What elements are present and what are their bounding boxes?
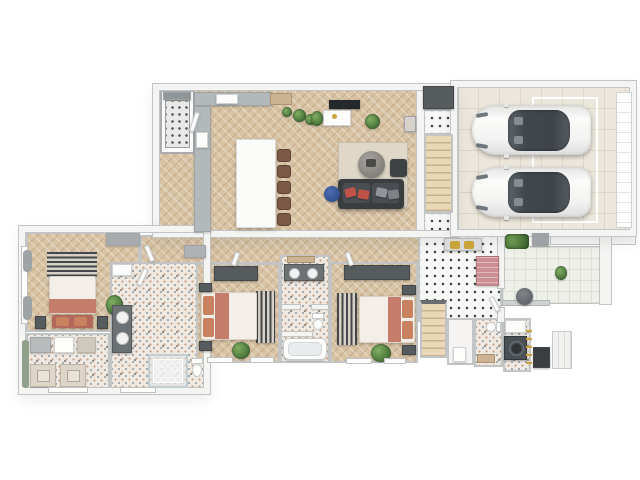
bench-cushion-gold [450,241,460,249]
plant-stand [404,116,416,132]
stair-closet [423,86,454,109]
window [384,358,406,364]
runner-rug [476,256,499,286]
bath-partition-wall [282,332,312,336]
sink [116,311,129,324]
blue-pouf [324,186,340,202]
dryer [60,364,86,387]
dryer-door [67,370,80,382]
dining-chair [277,213,291,226]
stair-landing-bottom [423,212,454,236]
toilet-bowl [313,319,323,330]
bath-shelf [287,256,315,263]
bedroom3-bed [359,296,415,343]
stairs-up [424,134,453,213]
outdoor-unit [533,347,550,368]
nightstand [97,316,108,329]
car-mirror [504,216,509,220]
bath-partition-wall [312,305,328,309]
bench-cushion [74,317,87,326]
coffee-table-decor [366,159,376,167]
wood-bench [477,354,495,363]
bed-pillow [203,318,214,337]
curtain [23,250,32,272]
plant [311,111,323,126]
kitchen-sink [196,132,208,148]
pantry-shelving [165,100,190,148]
plant [232,342,250,359]
car-seat [514,136,523,144]
entry-bench [444,238,482,251]
toilet [190,358,204,377]
car-seat [514,117,523,125]
front-load-washer [504,336,527,360]
master-headboard-rug [47,252,97,277]
bed-pillow [402,300,413,318]
closet-drawers [30,337,51,353]
sofa [338,179,404,209]
car-mirror [504,103,509,107]
dining-island [236,139,276,228]
closet-drawers [54,337,74,353]
sink [116,332,129,345]
bedroom2-bed [201,292,257,340]
window [250,357,274,363]
nightstand [402,285,416,295]
floor-plan [0,0,640,480]
patio-wall-right [600,231,611,304]
cooktop [216,94,238,104]
closet-greenery [22,340,29,388]
stairs-down [420,300,447,358]
washer-door [37,370,50,382]
kitchen-counter-left [194,106,211,232]
tv [329,100,360,109]
garage-door [616,92,632,228]
car-mirror [504,154,509,158]
washer [30,364,56,387]
sofa-pillow-red [357,189,369,200]
bed-throw [388,297,401,342]
plant [555,266,567,280]
toilet-bowl [192,364,202,377]
hedge [505,234,529,249]
washer-door [509,341,524,356]
master-bench [52,315,93,328]
car-mirror [504,165,509,169]
toilet-tank [496,322,501,332]
car-glass-roof [508,110,570,151]
stair-landing-top [423,109,454,135]
toilet-bowl [486,322,496,332]
bedside-rug [337,293,357,345]
bathtub-basin [288,342,322,356]
sofa-pillow-gray [387,189,399,199]
nightstand [402,345,416,355]
bench-cushion [56,317,69,326]
toilet [311,313,325,330]
bath-wall-cabinet [112,264,132,276]
car-glass-roof [508,172,570,213]
bed-throw [215,293,229,339]
closet-drawers [77,337,96,353]
car [472,167,591,217]
window [120,387,156,393]
toilet [486,321,501,333]
closet-box [453,347,466,362]
side-table [390,159,407,177]
bed-pillow [203,296,214,315]
laundry-shelf [505,320,526,333]
nightstand [35,316,46,329]
pantry-cabinet [163,92,191,100]
master-dresser [106,233,140,246]
planter [532,233,549,246]
plant [282,107,292,117]
ladder-rack [526,330,532,364]
bed-pillow [402,321,413,339]
kitchen-counter-wood [270,93,292,105]
sink [307,268,318,279]
console-decor [332,114,337,119]
master-bed-throw [49,299,96,313]
bathtub [283,338,327,360]
bistro-table [516,288,533,305]
patio-fence [551,231,635,244]
wall-living-stairs [417,89,424,235]
bench-cushion-gold [464,241,474,249]
car-seat [514,179,523,187]
porch-steps [552,331,572,369]
dining-chair [277,165,291,178]
window [207,357,233,363]
wardrobe [344,265,410,280]
shower-tray [153,359,183,383]
car [472,105,591,155]
sink [289,268,300,279]
plant [365,114,380,129]
dining-chair [277,197,291,210]
nightstand [199,283,212,292]
wardrobe [214,266,258,281]
curtain [23,296,32,320]
dining-chair [277,149,291,162]
window [346,358,372,364]
family-vanity [284,264,324,281]
window [48,387,88,393]
nightstand [199,341,212,351]
bedside-rug [256,291,275,343]
dining-chair [277,181,291,194]
bath-partition-wall [282,305,300,309]
car-seat [514,198,523,206]
corridor-cabinet [184,245,206,258]
master-vanity [112,305,132,353]
shower [148,354,188,388]
media-console [323,110,351,126]
